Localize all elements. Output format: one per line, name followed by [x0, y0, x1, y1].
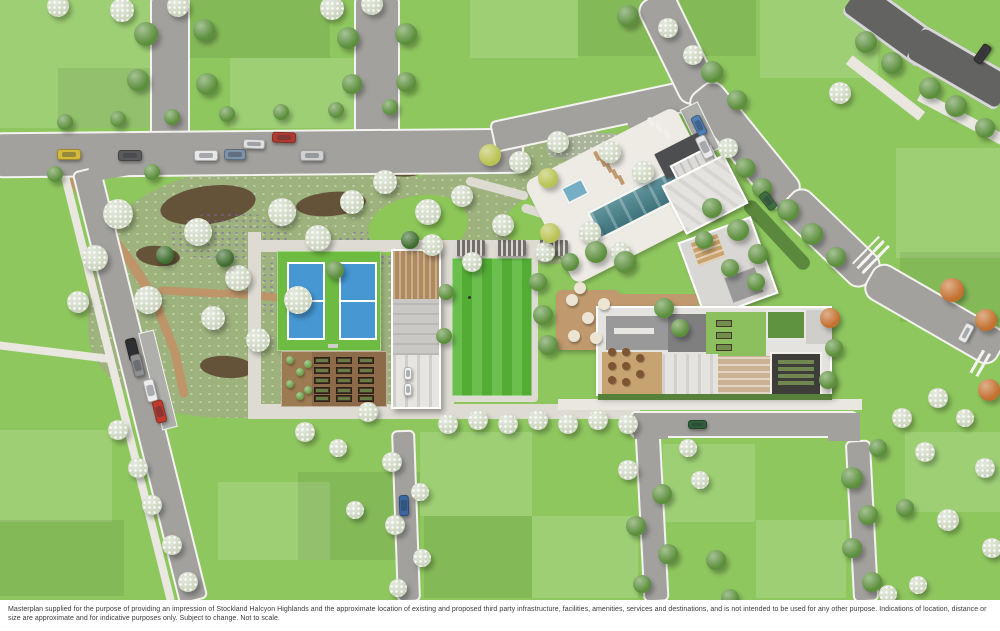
tree — [540, 223, 560, 243]
green-roof — [766, 310, 806, 340]
lawn-patch — [756, 520, 846, 598]
tree — [184, 218, 212, 246]
tree — [305, 225, 331, 251]
tree — [193, 19, 215, 41]
pickleball-court-2 — [339, 262, 377, 340]
tree — [328, 102, 344, 118]
tree — [626, 516, 646, 536]
tree — [286, 356, 294, 364]
garden-planter-bed — [336, 357, 352, 364]
tree — [373, 170, 397, 194]
tree — [389, 579, 407, 597]
raised-planter — [716, 344, 732, 351]
garden-planter-bed — [358, 377, 374, 384]
tree — [128, 458, 148, 478]
lawn-patch — [663, 444, 755, 522]
tree — [956, 409, 974, 427]
tree — [671, 319, 689, 337]
dining-table — [622, 378, 630, 386]
tree — [633, 575, 651, 593]
garden-planter-bed — [358, 387, 374, 394]
tree — [462, 252, 482, 272]
tree — [411, 483, 429, 501]
tree — [110, 111, 126, 127]
tree — [547, 131, 569, 153]
tree — [654, 298, 674, 318]
tree — [695, 231, 713, 249]
tree — [57, 114, 73, 130]
tree — [748, 244, 768, 264]
car — [688, 420, 707, 429]
tree — [103, 199, 133, 229]
tree — [395, 23, 417, 45]
tree — [819, 371, 837, 389]
car — [57, 149, 81, 160]
dining-table — [636, 370, 644, 378]
garden-planter-bed — [314, 387, 330, 394]
garden-planter-bed — [358, 357, 374, 364]
tree — [415, 199, 441, 225]
dining-table — [636, 354, 644, 362]
tree — [528, 410, 548, 430]
tree — [825, 339, 843, 357]
bar-kitchen-roof — [606, 316, 668, 350]
tree — [841, 467, 863, 489]
tree — [892, 408, 912, 428]
garden-planter-bed — [314, 395, 330, 402]
tree — [268, 198, 296, 226]
dining-table — [608, 348, 616, 356]
tree — [284, 286, 312, 314]
raised-planter — [716, 320, 732, 327]
tree — [801, 223, 823, 245]
tree — [735, 158, 755, 178]
tree — [585, 241, 607, 263]
tree — [201, 306, 225, 330]
tree — [216, 249, 234, 267]
garden-planter-bed — [336, 387, 352, 394]
garden-planter-bed — [314, 357, 330, 364]
tree — [385, 515, 405, 535]
tree — [842, 538, 862, 558]
tree — [329, 439, 347, 457]
disclaimer-text: Masterplan supplied for the purpose of p… — [8, 605, 992, 623]
tree — [701, 61, 723, 83]
lawn-patch — [532, 516, 638, 598]
tree — [855, 31, 877, 53]
tree — [599, 141, 621, 163]
tree — [896, 499, 914, 517]
clubhouse-skylight-roof — [662, 354, 718, 394]
tree — [691, 471, 709, 489]
tree — [652, 484, 672, 504]
tree — [978, 379, 1000, 401]
tree — [538, 335, 558, 355]
tree — [498, 414, 518, 434]
tree — [721, 259, 739, 277]
tree — [618, 414, 638, 434]
greenhouse-glass-roof — [393, 299, 439, 355]
bowling-green — [452, 258, 532, 396]
tree — [296, 368, 304, 376]
garden-planter-bed — [314, 367, 330, 374]
tree — [436, 328, 452, 344]
tree — [982, 538, 1000, 558]
gym-room — [718, 356, 770, 394]
tree — [82, 245, 108, 271]
masterplan-render — [0, 0, 1000, 600]
tree — [382, 99, 398, 115]
tree — [67, 291, 89, 313]
tree — [975, 118, 995, 138]
garden-planter-bed — [358, 367, 374, 374]
greenhouse-trellis-roof — [393, 251, 439, 299]
tree — [919, 77, 941, 99]
tree — [162, 535, 182, 555]
car — [399, 495, 410, 516]
tree — [718, 138, 738, 158]
tree — [304, 360, 312, 368]
tree — [492, 214, 514, 236]
tree — [134, 286, 162, 314]
tree — [915, 442, 935, 462]
tree — [777, 199, 799, 221]
dining-table — [622, 348, 630, 356]
tree — [219, 106, 235, 122]
tree — [820, 308, 840, 328]
tree — [727, 90, 747, 110]
road-north-center — [354, 0, 400, 136]
workshop-roof — [393, 355, 439, 407]
tree — [747, 273, 765, 291]
lawn-patch — [0, 430, 112, 522]
tree — [142, 495, 162, 515]
lawn-patch — [420, 432, 532, 516]
tree — [340, 190, 364, 214]
tree — [358, 402, 378, 422]
car — [224, 149, 246, 160]
tree — [618, 460, 638, 480]
tree — [144, 164, 160, 180]
dining-table — [608, 362, 616, 370]
car — [272, 132, 296, 144]
tree — [413, 549, 431, 567]
tree — [529, 273, 547, 291]
tree — [706, 550, 726, 570]
tree — [579, 221, 601, 243]
tree — [196, 73, 218, 95]
umbrella-table — [568, 330, 580, 342]
courtyard-garden — [706, 312, 766, 356]
tree — [320, 0, 344, 20]
tree — [679, 439, 697, 457]
tree — [829, 82, 851, 104]
tree — [225, 265, 251, 291]
tree — [273, 104, 289, 120]
tree — [438, 284, 454, 300]
tree — [909, 576, 927, 594]
greenhouse-building — [391, 249, 441, 409]
tree — [588, 410, 608, 430]
tree — [342, 74, 362, 94]
tree — [296, 392, 304, 400]
road-junction — [634, 413, 668, 439]
tree — [47, 166, 63, 182]
pergola — [496, 240, 526, 256]
tree — [509, 151, 531, 173]
umbrella-table — [566, 294, 578, 306]
car — [300, 150, 324, 161]
tree — [134, 22, 158, 46]
umbrella-table — [598, 298, 610, 310]
raised-planter — [716, 332, 732, 339]
lawn-patch — [470, 0, 578, 58]
car — [194, 150, 218, 161]
garden-planter-bed — [336, 367, 352, 374]
tree — [975, 309, 997, 331]
tree — [975, 458, 995, 478]
tree — [438, 414, 458, 434]
clubhouse-building — [596, 306, 832, 396]
bowling-green-pin — [468, 296, 471, 299]
tree — [108, 420, 128, 440]
tree — [451, 185, 473, 207]
tree — [937, 509, 959, 531]
clubhouse-sidewalk — [558, 399, 862, 410]
tree — [178, 572, 198, 592]
disclaimer-bar: Masterplan supplied for the purpose of p… — [0, 600, 1000, 631]
tree — [879, 585, 897, 600]
tree — [945, 95, 967, 117]
tree — [479, 144, 501, 166]
tree — [396, 72, 416, 92]
tree — [337, 27, 359, 49]
tree — [614, 251, 636, 273]
car — [404, 383, 412, 396]
tree — [246, 328, 270, 352]
tree — [286, 380, 294, 388]
tree — [683, 45, 703, 65]
tree — [468, 410, 488, 430]
tree — [658, 544, 678, 564]
lawn-patch — [424, 516, 532, 598]
umbrella-table — [582, 312, 594, 324]
tree — [538, 168, 558, 188]
tree — [632, 161, 654, 183]
tree — [326, 261, 344, 279]
tree — [940, 278, 964, 302]
garden-planter-bed — [358, 395, 374, 402]
umbrella-table — [574, 282, 586, 294]
garden-planter-bed — [336, 377, 352, 384]
tree — [304, 386, 312, 394]
car — [404, 367, 412, 380]
car — [243, 139, 265, 150]
dining-table — [608, 376, 616, 384]
tree — [127, 69, 149, 91]
tree — [881, 52, 903, 74]
road-junction — [828, 413, 860, 441]
tree — [535, 242, 555, 262]
lawn-patch — [0, 520, 124, 596]
cinema-room — [770, 352, 822, 396]
tree — [617, 5, 639, 27]
tree — [869, 439, 887, 457]
tree — [702, 198, 722, 218]
tree — [727, 219, 749, 241]
masterplan-page: Masterplan supplied for the purpose of p… — [0, 0, 1000, 631]
road-junction — [352, 134, 402, 172]
garden-planter-bed — [336, 395, 352, 402]
tree — [721, 589, 739, 600]
car — [118, 150, 142, 161]
dining-room — [602, 352, 662, 394]
tree — [533, 305, 553, 325]
path-west-of-courts — [248, 232, 261, 408]
tree — [164, 109, 180, 125]
tree — [558, 414, 578, 434]
tree — [401, 231, 419, 249]
tree — [346, 501, 364, 519]
hedge-row — [598, 394, 832, 400]
tree — [382, 452, 402, 472]
tree — [561, 253, 579, 271]
garden-planter-bed — [314, 377, 330, 384]
tree — [156, 246, 174, 264]
tree — [295, 422, 315, 442]
dining-table — [622, 362, 630, 370]
tree — [826, 247, 846, 267]
tree — [858, 505, 878, 525]
lawn-patch — [896, 148, 1000, 258]
tree — [928, 388, 948, 408]
tree — [658, 18, 678, 38]
tree — [421, 234, 443, 256]
umbrella-table — [590, 332, 602, 344]
court-bench — [328, 344, 338, 348]
